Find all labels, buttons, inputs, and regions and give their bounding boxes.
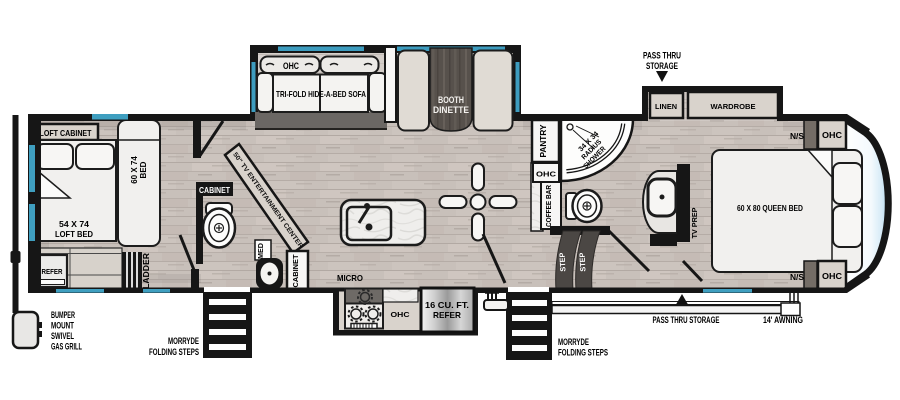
svg-text:DINETTE: DINETTE — [433, 105, 469, 115]
svg-text:WARDROBE: WARDROBE — [711, 102, 756, 111]
svg-text:60 X 74: 60 X 74 — [130, 156, 139, 184]
svg-text:OHC: OHC — [283, 61, 299, 71]
svg-text:PASS THRU: PASS THRU — [643, 51, 681, 61]
svg-text:TV PREP: TV PREP — [690, 208, 699, 239]
svg-text:PASS THRU STORAGE: PASS THRU STORAGE — [653, 315, 720, 325]
svg-text:MICRO: MICRO — [337, 273, 363, 283]
svg-text:OHC: OHC — [822, 272, 842, 281]
svg-text:CABINET: CABINET — [199, 186, 230, 195]
svg-text:STEP: STEP — [578, 252, 588, 271]
svg-text:SWIVEL: SWIVEL — [51, 331, 74, 341]
svg-text:OHC: OHC — [391, 312, 410, 319]
svg-text:OHC: OHC — [822, 131, 842, 140]
svg-text:LOFT BED: LOFT BED — [55, 229, 93, 239]
svg-text:16 CU. FT.: 16 CU. FT. — [425, 300, 469, 310]
svg-text:TRI-FOLD HIDE-A-BED SOFA: TRI-FOLD HIDE-A-BED SOFA — [276, 89, 366, 99]
svg-text:MOUNT: MOUNT — [51, 321, 74, 331]
svg-text:COFFEE BAR: COFFEE BAR — [544, 184, 553, 227]
svg-text:CABINET: CABINET — [291, 254, 300, 287]
svg-text:MORRYDE: MORRYDE — [168, 336, 199, 346]
svg-text:REFER: REFER — [42, 267, 63, 276]
svg-text:BOOTH: BOOTH — [438, 95, 464, 105]
svg-text:N/S: N/S — [790, 273, 805, 282]
svg-text:N/S: N/S — [790, 132, 805, 141]
svg-text:MED: MED — [256, 242, 265, 259]
svg-text:FOLDING STEPS: FOLDING STEPS — [558, 348, 608, 358]
svg-text:STORAGE: STORAGE — [646, 61, 678, 71]
svg-text:REFER: REFER — [433, 310, 461, 320]
svg-text:BUMPER: BUMPER — [51, 310, 75, 320]
svg-text:GAS GRILL: GAS GRILL — [51, 342, 82, 352]
svg-text:LADDER: LADDER — [141, 253, 151, 289]
svg-text:54 X 74: 54 X 74 — [59, 219, 89, 229]
svg-text:STEP: STEP — [558, 252, 568, 271]
svg-text:OHC: OHC — [536, 170, 557, 179]
svg-text:FOLDING STEPS: FOLDING STEPS — [149, 347, 199, 357]
svg-text:MORRYDE: MORRYDE — [558, 337, 589, 347]
svg-text:14' AWNING: 14' AWNING — [763, 315, 803, 325]
svg-text:60 X 80 QUEEN BED: 60 X 80 QUEEN BED — [737, 204, 803, 213]
svg-text:LOFT CABINET: LOFT CABINET — [40, 128, 93, 138]
svg-text:LINEN: LINEN — [655, 102, 677, 111]
svg-text:BED: BED — [139, 161, 148, 178]
svg-text:PANTRY: PANTRY — [539, 124, 548, 158]
